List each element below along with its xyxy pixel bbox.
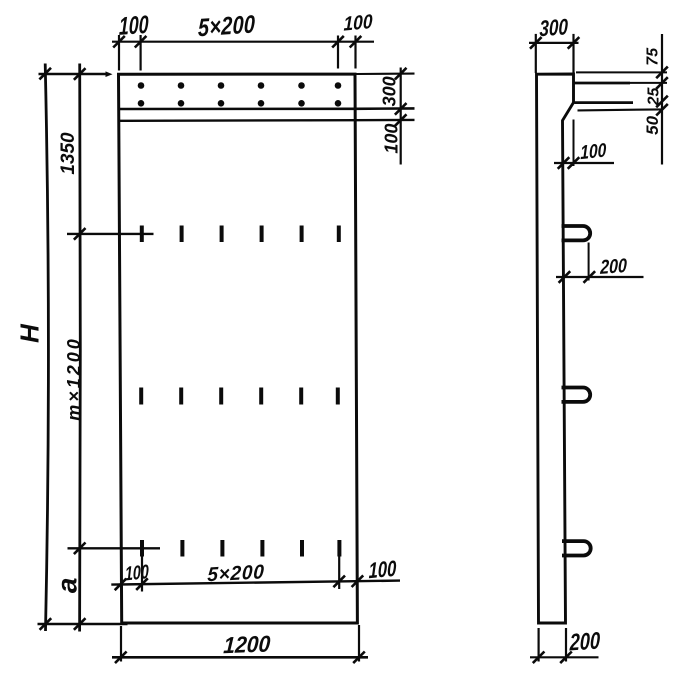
svg-text:50: 50 xyxy=(643,115,662,134)
svg-text:100: 100 xyxy=(344,10,373,35)
svg-text:5×200: 5×200 xyxy=(198,9,256,42)
svg-text:1350: 1350 xyxy=(58,132,79,175)
svg-text:100: 100 xyxy=(125,560,150,585)
svg-text:m×1200: m×1200 xyxy=(64,336,84,421)
svg-text:200: 200 xyxy=(599,254,627,278)
svg-text:a: a xyxy=(52,578,83,594)
svg-text:300: 300 xyxy=(380,76,400,106)
svg-text:200: 200 xyxy=(569,628,601,656)
svg-text:H: H xyxy=(14,323,44,343)
svg-text:100: 100 xyxy=(368,557,396,584)
svg-text:100: 100 xyxy=(580,139,607,164)
svg-text:75: 75 xyxy=(645,47,662,66)
svg-text:1200: 1200 xyxy=(223,631,272,659)
svg-text:5×200: 5×200 xyxy=(207,561,265,587)
svg-text:300: 300 xyxy=(539,15,568,42)
svg-text:25: 25 xyxy=(646,87,663,107)
svg-text:100: 100 xyxy=(382,124,402,154)
svg-text:100: 100 xyxy=(119,10,149,41)
